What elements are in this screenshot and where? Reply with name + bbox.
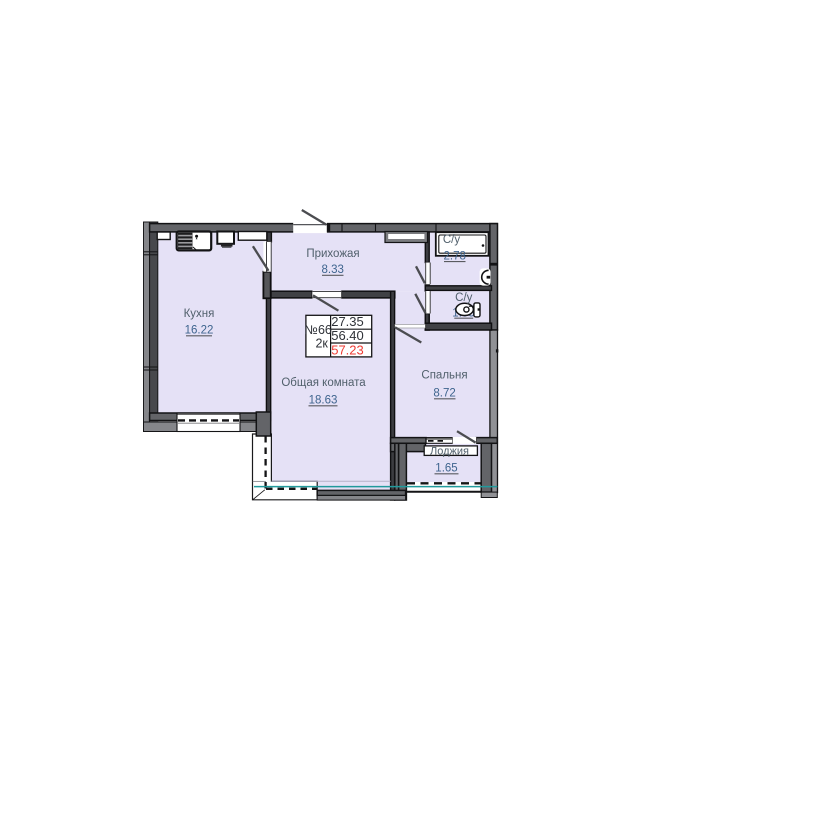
svg-text:27.35: 27.35 — [331, 314, 364, 329]
svg-text:16.22: 16.22 — [185, 325, 214, 337]
svg-text:57.23: 57.23 — [331, 343, 364, 358]
svg-text:С/у: С/у — [455, 292, 473, 304]
svg-text:Спальня: Спальня — [421, 370, 467, 382]
svg-text:1.65: 1.65 — [435, 463, 457, 475]
svg-text:8.72: 8.72 — [433, 388, 455, 400]
svg-text:Кухня: Кухня — [184, 308, 215, 320]
svg-text:56.40: 56.40 — [331, 328, 364, 343]
svg-text:2к: 2к — [315, 337, 328, 351]
svg-text:Лоджия: Лоджия — [430, 445, 469, 457]
svg-text:2.78: 2.78 — [444, 250, 466, 262]
svg-text:С/у: С/у — [443, 234, 461, 246]
svg-text:Общая комната: Общая комната — [281, 377, 366, 389]
svg-text:18.63: 18.63 — [309, 395, 338, 407]
svg-text:8.33: 8.33 — [322, 264, 344, 276]
svg-text:Прихожая: Прихожая — [306, 248, 359, 260]
svg-text:№66: №66 — [305, 323, 332, 337]
